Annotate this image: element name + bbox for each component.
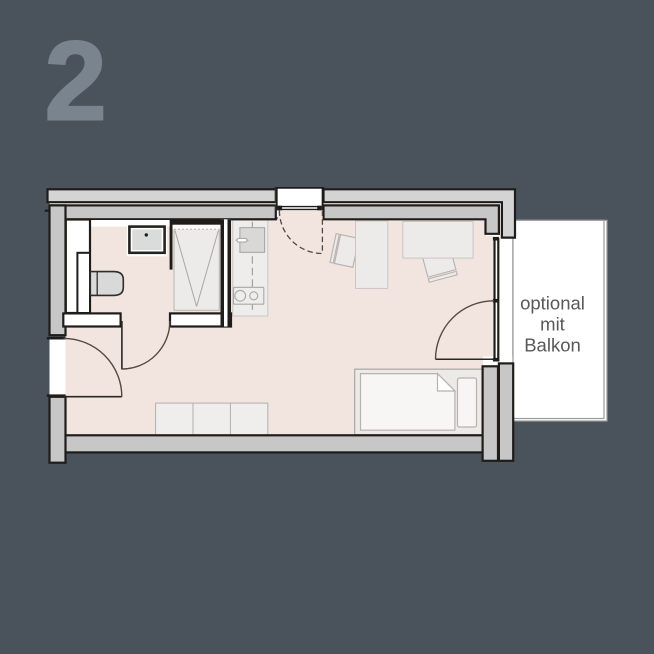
svg-text:2: 2 bbox=[45, 19, 107, 144]
svg-text:optional: optional bbox=[520, 293, 585, 314]
svg-text:Balkon: Balkon bbox=[524, 335, 581, 356]
svg-text:mit: mit bbox=[540, 314, 565, 335]
